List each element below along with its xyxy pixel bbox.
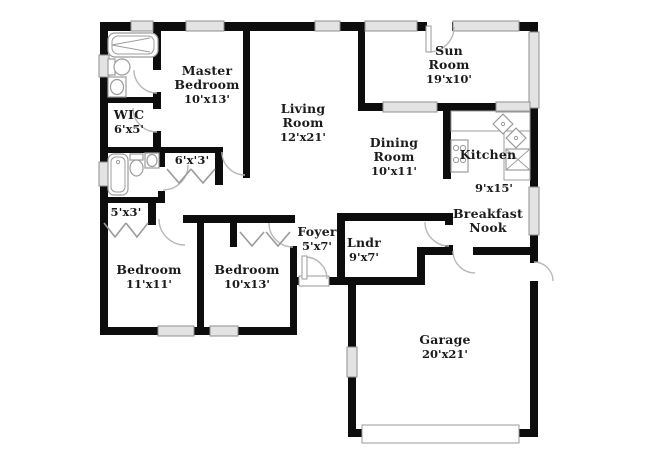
- walls: [100, 22, 538, 437]
- door-leaf: [302, 256, 307, 279]
- bathtub-icon: [108, 154, 128, 195]
- floor-plan: Master Bedroom 10'x13' WIC 6'x5' Living …: [0, 0, 650, 473]
- refrigerator-icon: [506, 149, 530, 170]
- floor-plan-drawing: [0, 0, 650, 473]
- window: [453, 21, 519, 31]
- kitchen-counter: [451, 111, 530, 131]
- door-swing: [222, 152, 245, 175]
- sink-icon: [145, 153, 159, 168]
- window: [529, 187, 539, 235]
- master-bath-fixtures: [108, 33, 158, 97]
- window: [315, 21, 340, 31]
- door-swing: [134, 70, 157, 93]
- door-leaf: [426, 26, 431, 52]
- window: [131, 21, 153, 31]
- kitchen-fixtures: [451, 111, 530, 180]
- hall-bath-fixtures: [108, 153, 159, 195]
- door-swing: [425, 222, 449, 246]
- window: [186, 21, 224, 31]
- window: [365, 21, 417, 31]
- door-swing: [133, 108, 157, 132]
- window: [158, 326, 194, 336]
- window: [529, 32, 539, 108]
- window: [347, 347, 357, 377]
- stove-icon: [451, 140, 468, 172]
- garage-door: [362, 425, 519, 443]
- door-swing: [159, 219, 185, 245]
- window: [210, 326, 238, 336]
- bathtub-icon: [108, 33, 158, 57]
- door-swing: [534, 262, 553, 281]
- sink-icon: [108, 77, 126, 97]
- window: [383, 102, 437, 112]
- door-swing: [453, 251, 475, 273]
- door-swing: [429, 27, 454, 52]
- toilet-icon: [108, 59, 130, 75]
- toilet-icon: [130, 154, 143, 176]
